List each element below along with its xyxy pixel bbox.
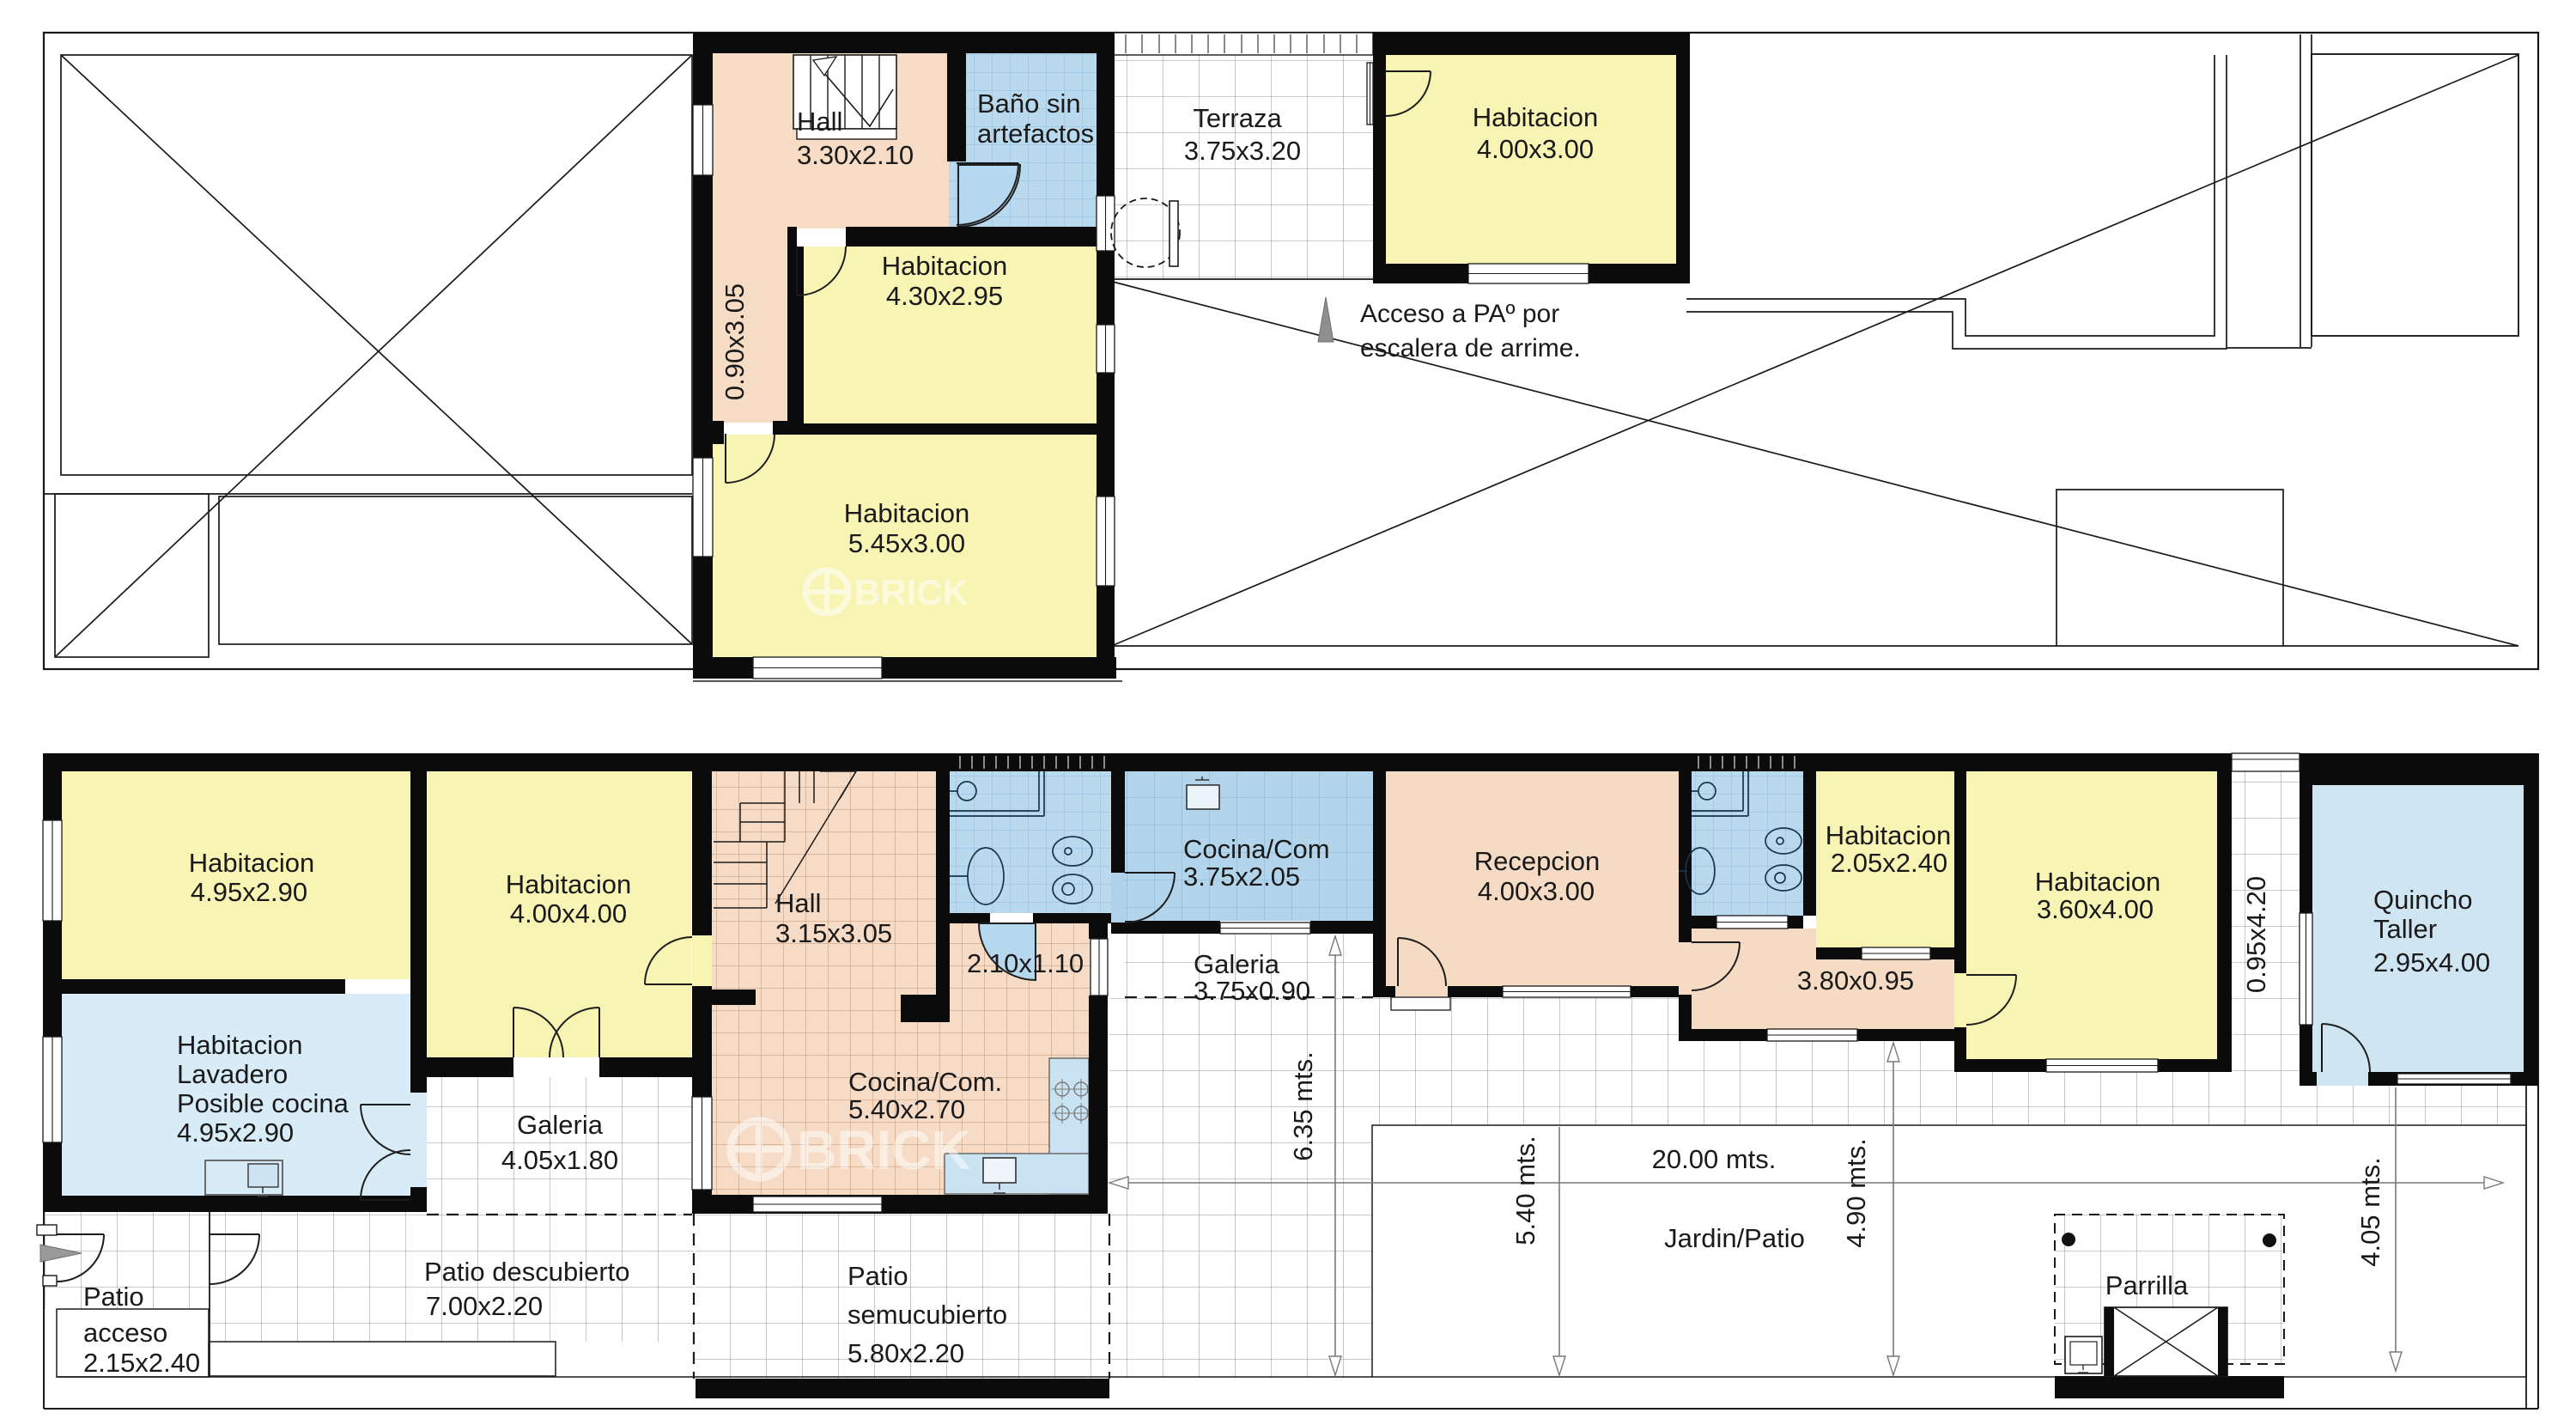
svg-text:Acceso a PAº por: Acceso a PAº por (1360, 300, 1559, 328)
svg-text:Quincho: Quincho (2373, 885, 2472, 915)
svg-text:0.90x3.05: 0.90x3.05 (720, 283, 750, 400)
svg-text:Habitacion: Habitacion (844, 498, 969, 528)
svg-text:5.80x2.20: 5.80x2.20 (848, 1338, 964, 1368)
svg-text:Jardin/Patio: Jardin/Patio (1664, 1223, 1805, 1253)
svg-text:3.80x0.95: 3.80x0.95 (1797, 965, 1914, 996)
svg-text:Patio descubierto: Patio descubierto (424, 1257, 630, 1287)
svg-text:4.05 mts.: 4.05 mts. (2355, 1157, 2385, 1267)
svg-text:5.45x3.00: 5.45x3.00 (848, 528, 965, 558)
svg-text:4.05x1.80: 4.05x1.80 (501, 1145, 618, 1175)
svg-text:4.95x2.90: 4.95x2.90 (177, 1117, 294, 1148)
svg-text:2.10x1.10: 2.10x1.10 (967, 948, 1084, 978)
svg-text:Habitacion: Habitacion (506, 869, 631, 899)
svg-text:Habitacion: Habitacion (189, 848, 314, 878)
svg-text:Terraza: Terraza (1193, 103, 1282, 133)
svg-text:2.15x2.40: 2.15x2.40 (83, 1348, 200, 1378)
svg-text:Habitacion: Habitacion (1826, 820, 1951, 850)
svg-text:Galeria: Galeria (517, 1110, 604, 1140)
svg-text:escalera de arrime.: escalera de arrime. (1360, 334, 1581, 362)
svg-text:7.00x2.20: 7.00x2.20 (426, 1291, 543, 1321)
svg-text:3.30x2.10: 3.30x2.10 (797, 140, 914, 170)
svg-text:Habitacion: Habitacion (882, 251, 1007, 281)
svg-text:6.35 mts.: 6.35 mts. (1288, 1051, 1318, 1161)
svg-text:Lavadero: Lavadero (177, 1059, 288, 1089)
svg-text:3.75x2.05: 3.75x2.05 (1183, 862, 1300, 892)
svg-text:Habitacion: Habitacion (1473, 102, 1598, 132)
svg-text:4.00x4.00: 4.00x4.00 (510, 898, 627, 929)
svg-text:Cocina/Com.: Cocina/Com. (848, 1067, 1002, 1097)
svg-text:Galeria: Galeria (1194, 949, 1280, 979)
svg-text:Recepcion: Recepcion (1474, 846, 1600, 876)
svg-text:semucubierto: semucubierto (848, 1300, 1007, 1330)
svg-text:3.75x0.90: 3.75x0.90 (1194, 976, 1310, 1006)
svg-text:Hall: Hall (775, 888, 821, 918)
svg-text:Posible cocina: Posible cocina (177, 1088, 349, 1118)
svg-text:Parrilla: Parrilla (2105, 1270, 2189, 1300)
svg-text:Taller: Taller (2373, 914, 2437, 944)
svg-text:Habitacion: Habitacion (2035, 867, 2160, 897)
svg-text:4.30x2.95: 4.30x2.95 (886, 281, 1003, 311)
svg-text:4.00x3.00: 4.00x3.00 (1477, 134, 1594, 164)
svg-text:acceso: acceso (83, 1318, 167, 1348)
svg-text:Patio: Patio (83, 1282, 144, 1312)
svg-text:Baño sin: Baño sin (977, 88, 1081, 119)
svg-text:BRICK: BRICK (854, 572, 969, 612)
svg-text:Habitacion: Habitacion (177, 1030, 302, 1060)
svg-text:4.00x3.00: 4.00x3.00 (1478, 876, 1595, 906)
svg-text:2.05x2.40: 2.05x2.40 (1831, 848, 1947, 878)
svg-text:0.95x4.20: 0.95x4.20 (2241, 876, 2271, 993)
svg-text:Hall: Hall (797, 107, 842, 137)
svg-text:artefactos: artefactos (977, 119, 1094, 149)
svg-text:5.40 mts.: 5.40 mts. (1510, 1136, 1540, 1245)
svg-text:BRICK: BRICK (797, 1119, 971, 1181)
svg-text:20.00 mts.: 20.00 mts. (1652, 1144, 1777, 1174)
svg-text:4.95x2.90: 4.95x2.90 (191, 877, 307, 907)
svg-text:3.15x3.05: 3.15x3.05 (775, 918, 892, 948)
svg-text:Cocina/Com: Cocina/Com (1183, 834, 1330, 864)
svg-text:2.95x4.00: 2.95x4.00 (2373, 947, 2490, 977)
svg-text:4.90 mts.: 4.90 mts. (1841, 1138, 1871, 1248)
svg-text:Patio: Patio (848, 1261, 908, 1291)
svg-text:3.75x3.20: 3.75x3.20 (1184, 136, 1301, 166)
svg-text:3.60x4.00: 3.60x4.00 (2037, 894, 2154, 924)
